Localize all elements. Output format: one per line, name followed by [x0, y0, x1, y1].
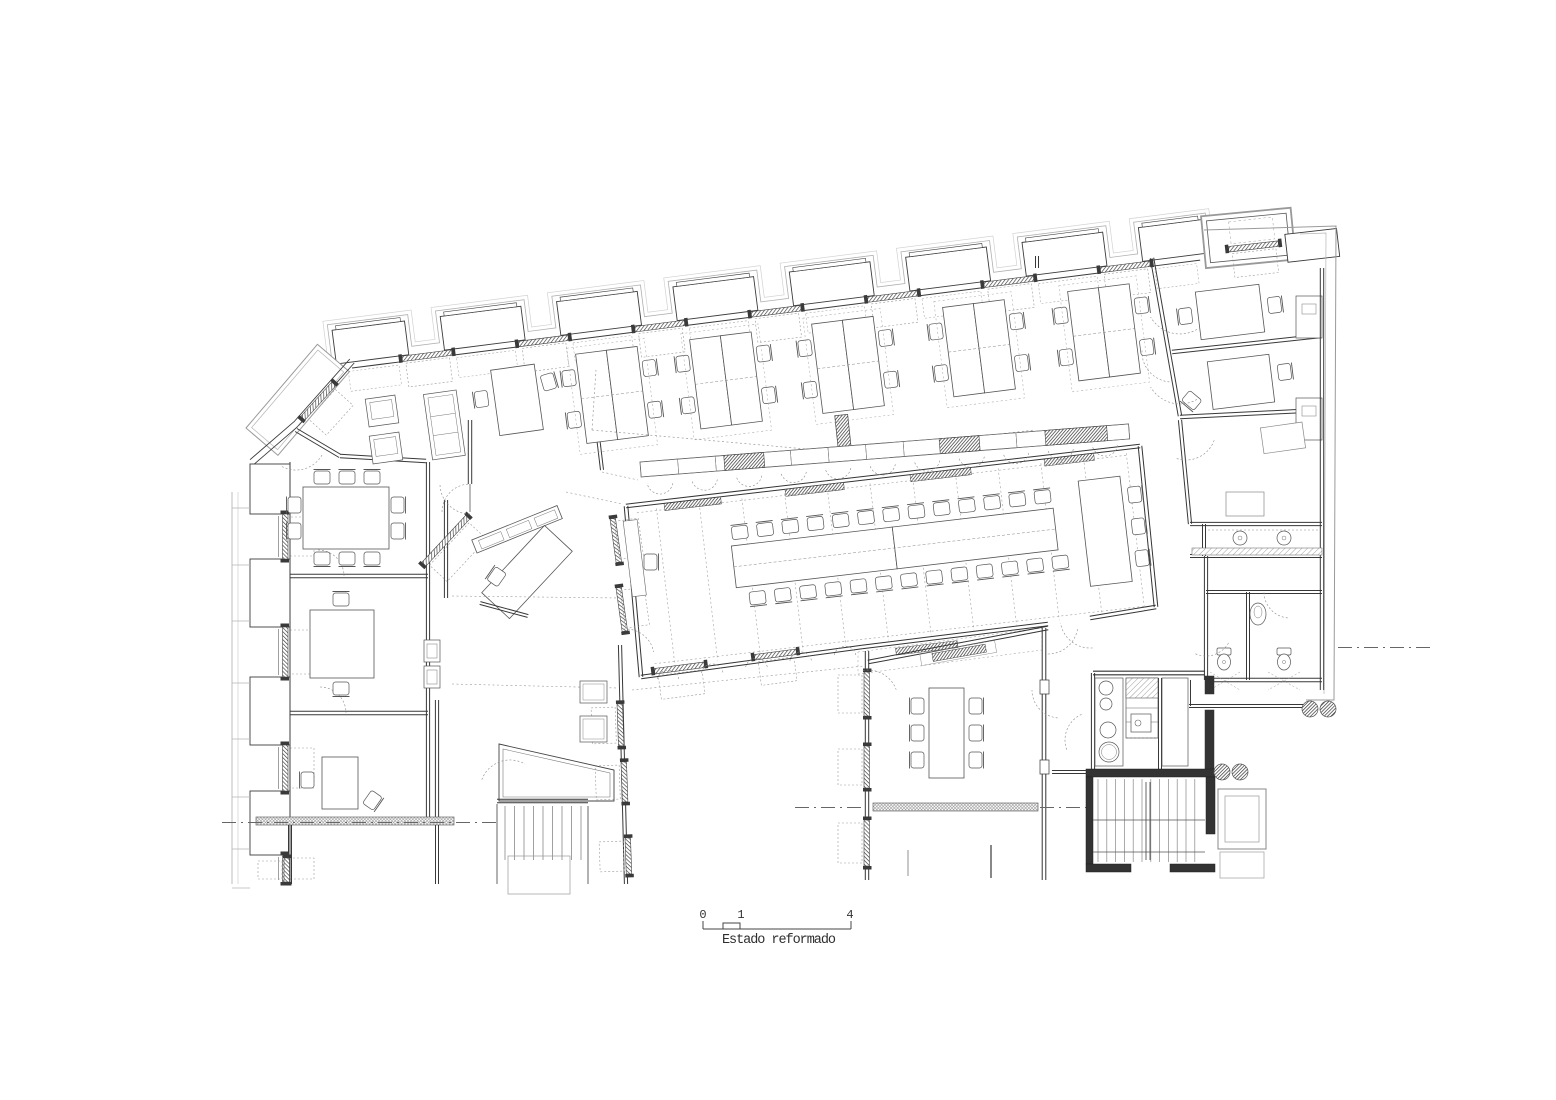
svg-text:4: 4 — [846, 908, 853, 922]
svg-text:Estado reformado: Estado reformado — [722, 933, 836, 948]
svg-text:0: 0 — [699, 908, 706, 922]
svg-text:1: 1 — [737, 908, 744, 922]
